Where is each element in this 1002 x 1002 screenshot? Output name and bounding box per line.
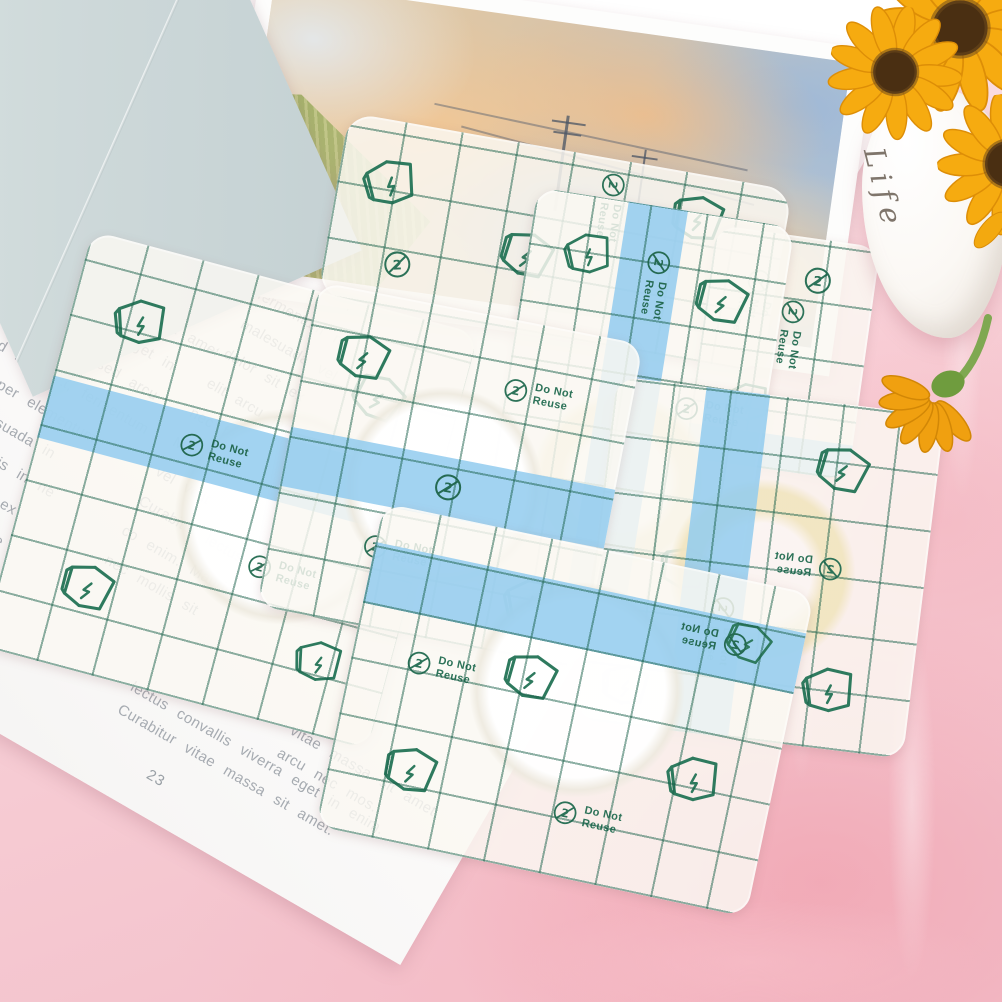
package-insert-icon (664, 751, 726, 803)
do-not-reuse-icon (549, 797, 581, 829)
sunflowers (702, 0, 1002, 548)
sunflower-stem (878, 318, 988, 454)
package-insert-icon (110, 293, 175, 348)
package-insert-icon (51, 550, 128, 622)
package-insert-icon (375, 734, 450, 803)
do-not-reuse-icon (500, 375, 532, 407)
do-not-reuse-icon (719, 628, 751, 660)
do-not-reuse-label: Do NotReuse (403, 647, 478, 688)
package-insert-icon (327, 320, 404, 391)
do-not-reuse-icon (598, 170, 628, 200)
do-not-reuse-icon (403, 647, 435, 679)
package-insert-icon (289, 633, 351, 688)
package-insert-icon (559, 226, 619, 278)
do-not-reuse-icon (815, 554, 845, 584)
do-not-reuse-label: Do NotReuse (549, 797, 624, 838)
do-not-reuse-icon (643, 247, 674, 278)
do-not-reuse-icon (430, 469, 466, 505)
package-insert-icon (798, 662, 861, 715)
flat-lay-photo: 2 (0, 0, 1002, 1002)
do-not-reuse-icon (381, 248, 413, 280)
do-not-reuse-label: Do NotReuse (500, 375, 574, 415)
package-insert-icon (357, 151, 426, 211)
